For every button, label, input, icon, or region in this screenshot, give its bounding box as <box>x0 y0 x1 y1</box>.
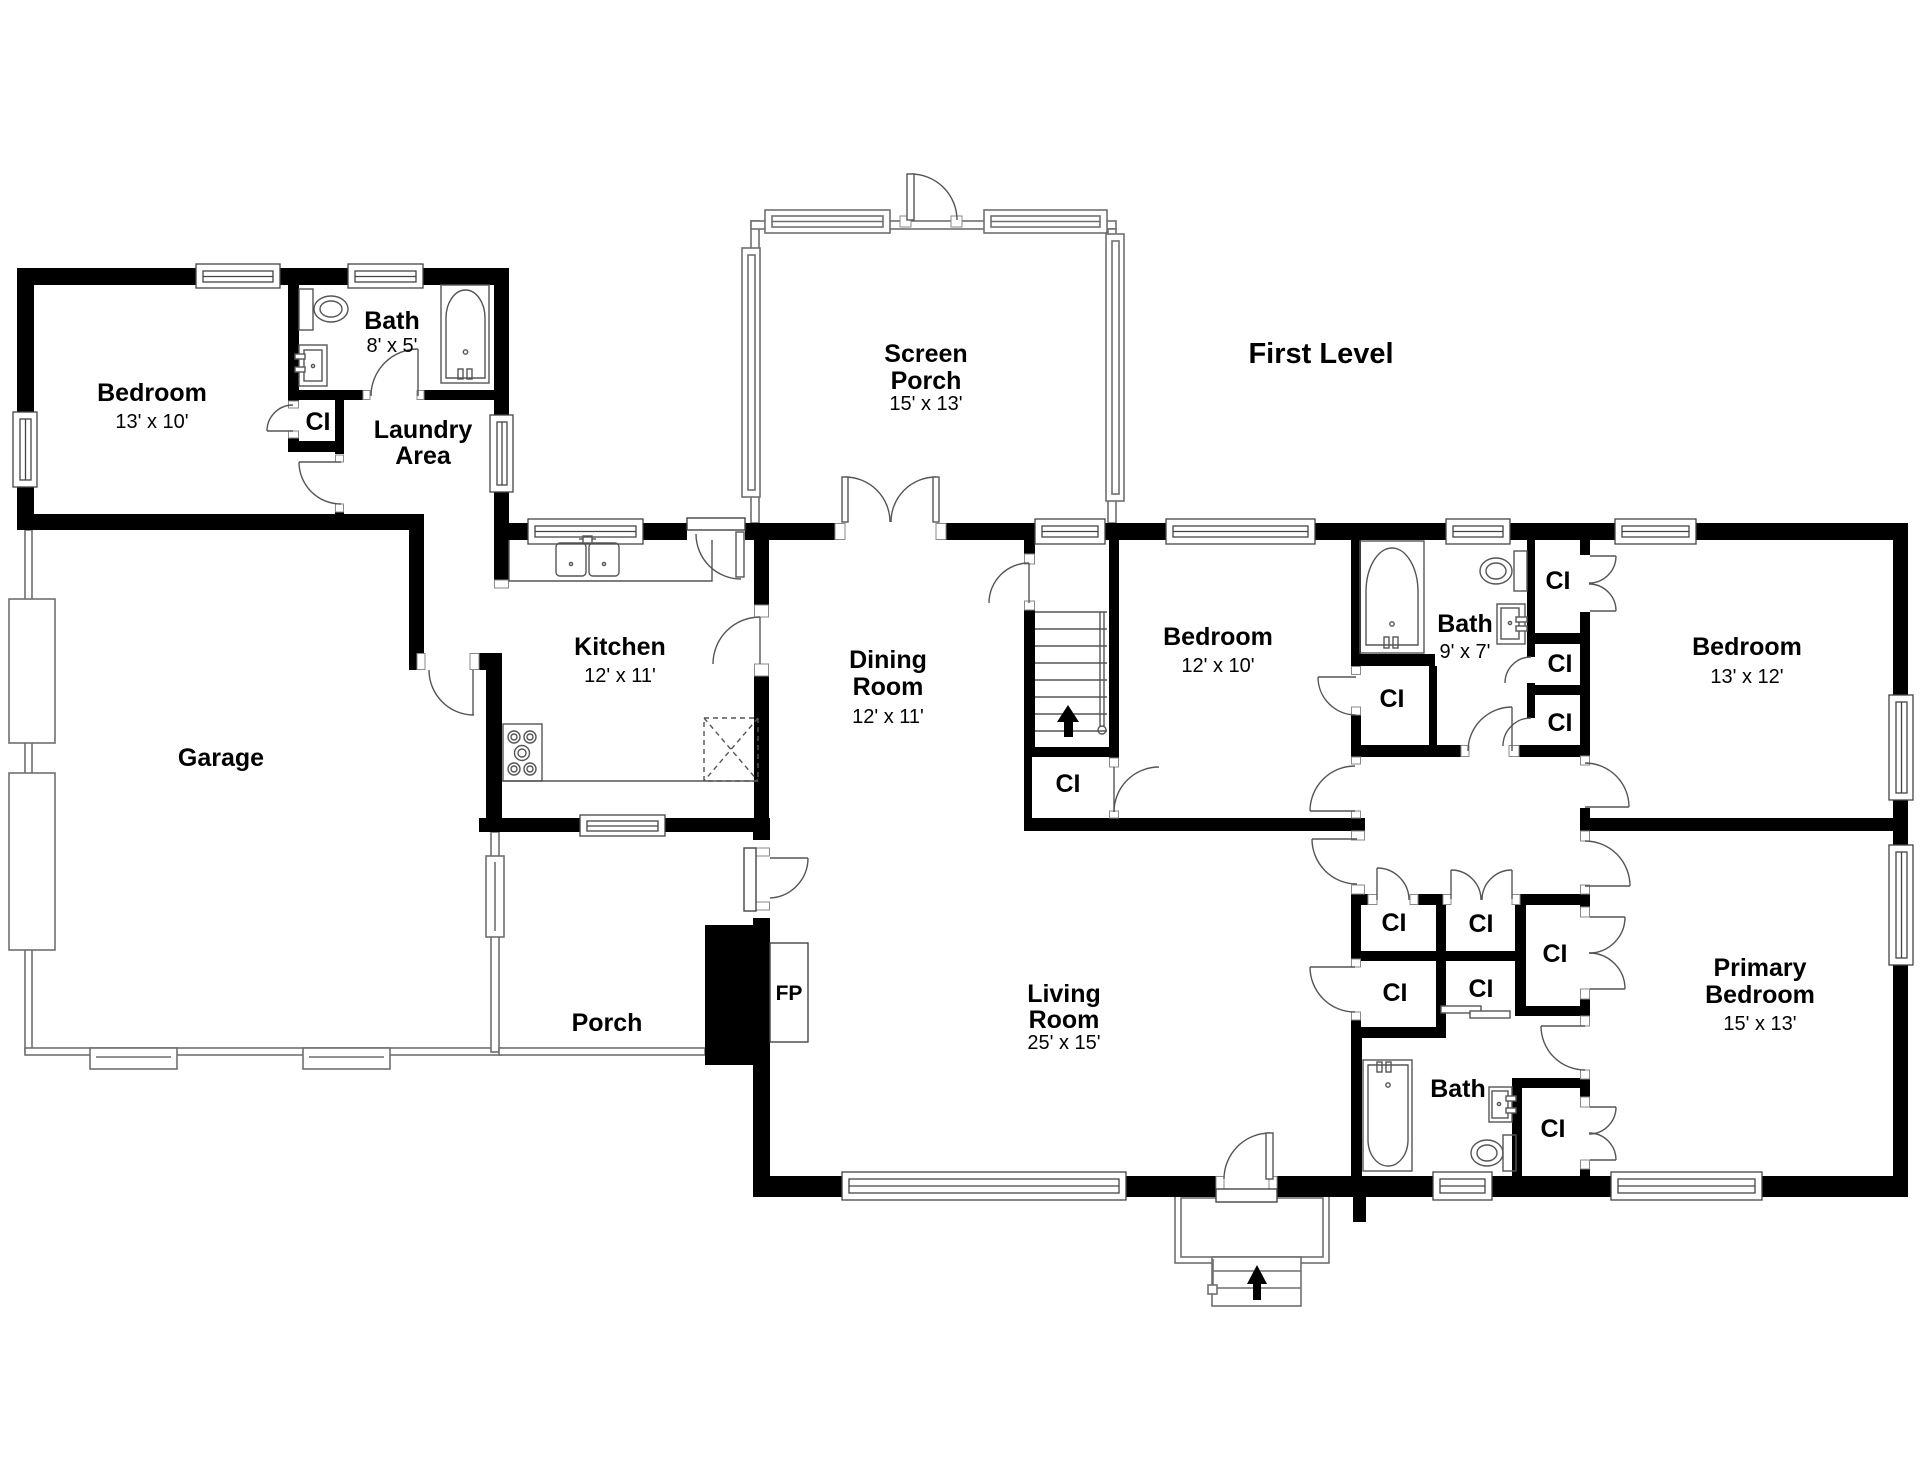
svg-text:12' x 10': 12' x 10' <box>1181 655 1254 677</box>
svg-text:CI: CI <box>306 408 331 436</box>
svg-text:FP: FP <box>776 982 803 1005</box>
svg-text:15' x 13': 15' x 13' <box>889 393 962 415</box>
svg-text:Porch: Porch <box>891 367 962 395</box>
svg-text:Bath: Bath <box>1437 610 1493 638</box>
svg-text:Room: Room <box>853 673 924 701</box>
svg-text:Porch: Porch <box>572 1009 643 1037</box>
svg-text:CI: CI <box>1382 909 1407 937</box>
svg-text:Kitchen: Kitchen <box>574 633 666 661</box>
svg-text:CI: CI <box>1469 910 1494 938</box>
svg-text:13' x 10': 13' x 10' <box>115 411 188 433</box>
svg-text:12' x 11': 12' x 11' <box>584 665 656 687</box>
svg-text:CI: CI <box>1546 567 1571 595</box>
svg-text:Screen: Screen <box>884 340 967 368</box>
svg-text:Bath: Bath <box>364 307 420 335</box>
svg-text:12' x 11': 12' x 11' <box>852 706 924 728</box>
svg-text:Bedroom: Bedroom <box>97 379 207 407</box>
svg-text:13' x 12': 13' x 12' <box>1710 666 1783 688</box>
svg-text:First Level: First Level <box>1248 338 1393 370</box>
svg-text:Bedroom: Bedroom <box>1692 633 1802 661</box>
svg-text:Primary: Primary <box>1713 954 1806 982</box>
svg-text:8' x 5': 8' x 5' <box>367 335 418 357</box>
svg-text:15' x 13': 15' x 13' <box>1723 1013 1796 1035</box>
svg-text:CI: CI <box>1541 1115 1566 1143</box>
svg-text:Living: Living <box>1027 980 1101 1008</box>
svg-text:Garage: Garage <box>178 744 264 772</box>
svg-text:Laundry: Laundry <box>374 416 473 444</box>
svg-text:9' x 7': 9' x 7' <box>1440 641 1491 663</box>
svg-text:Bedroom: Bedroom <box>1705 981 1815 1009</box>
svg-text:CI: CI <box>1548 650 1573 678</box>
svg-text:Area: Area <box>395 442 452 470</box>
svg-text:CI: CI <box>1383 979 1408 1007</box>
svg-text:Dining: Dining <box>849 646 927 674</box>
svg-text:CI: CI <box>1469 975 1494 1003</box>
svg-text:CI: CI <box>1380 685 1405 713</box>
svg-text:CI: CI <box>1056 770 1081 798</box>
svg-text:CI: CI <box>1543 940 1568 968</box>
svg-text:CI: CI <box>1548 709 1573 737</box>
svg-text:25' x 15': 25' x 15' <box>1027 1032 1100 1054</box>
svg-text:Room: Room <box>1029 1006 1100 1034</box>
svg-text:Bedroom: Bedroom <box>1163 623 1273 651</box>
svg-text:Bath: Bath <box>1430 1075 1486 1103</box>
